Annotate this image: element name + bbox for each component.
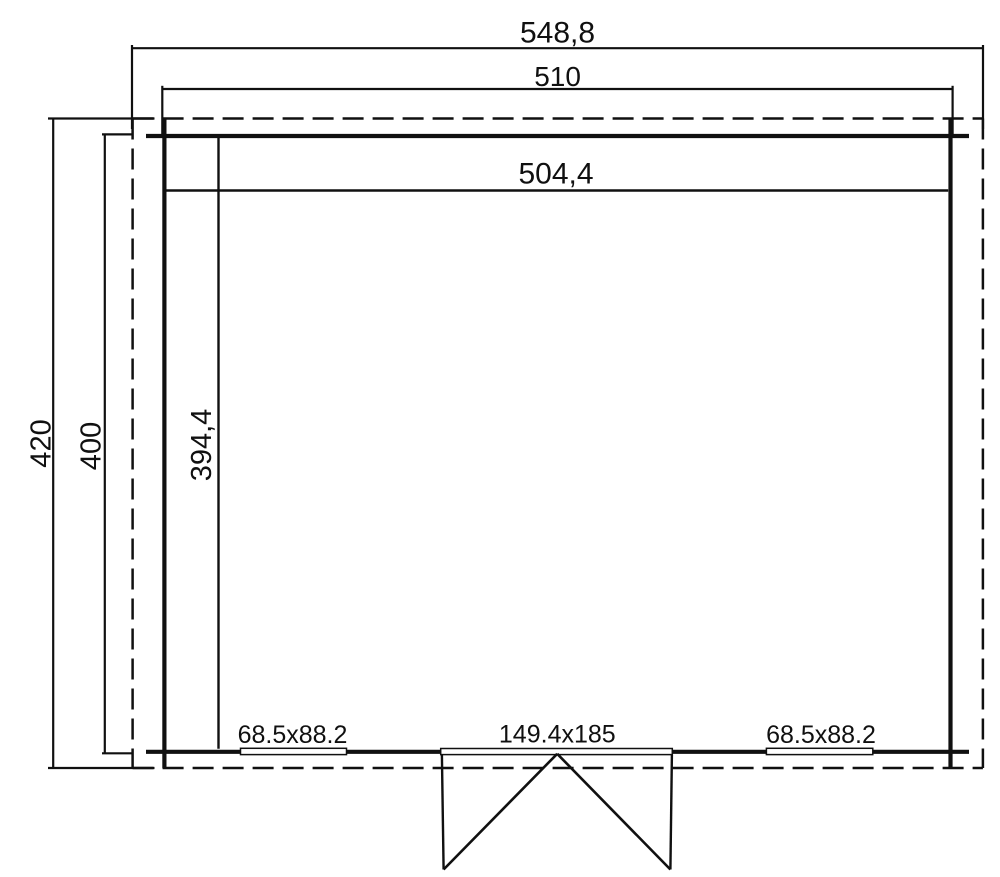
svg-text:149.4x185: 149.4x185 (499, 721, 616, 749)
svg-text:548,8: 548,8 (520, 17, 595, 50)
svg-text:504,4: 504,4 (518, 158, 593, 191)
svg-text:68.5x88.2: 68.5x88.2 (238, 721, 348, 749)
svg-text:394,4: 394,4 (186, 409, 218, 482)
svg-text:420: 420 (26, 419, 58, 467)
svg-text:68.5x88.2: 68.5x88.2 (766, 721, 876, 749)
svg-text:400: 400 (76, 422, 108, 470)
svg-text:510: 510 (534, 61, 581, 92)
